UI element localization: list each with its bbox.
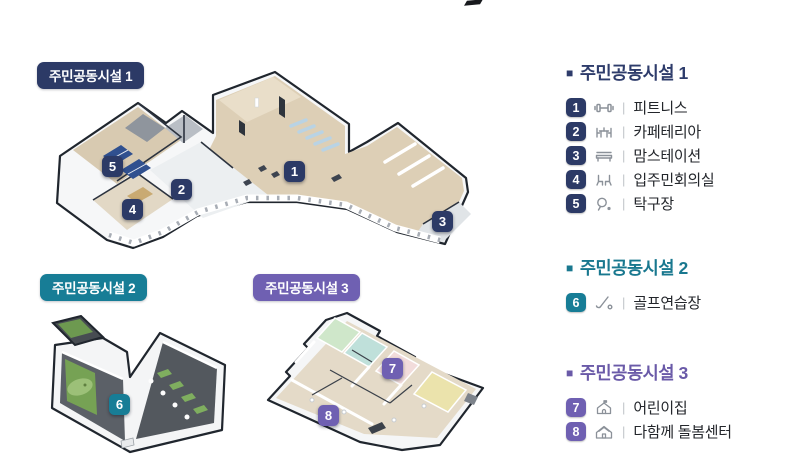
legend-item-mom-station: 3 | 맘스테이션: [566, 146, 798, 165]
golf-hole: [84, 384, 87, 387]
legend-title-text: 주민공동시설 1: [580, 62, 688, 84]
top-edge-fragment: [464, 0, 483, 6]
legend-item-meeting-room: 4 | 입주민회의실: [566, 170, 798, 189]
separator: |: [622, 400, 625, 415]
plan-label-2: 주민공동시설 2: [40, 274, 147, 301]
square-bullet-icon: ■: [566, 367, 573, 379]
daycare-building-icon: [594, 400, 614, 416]
legend-num-badge: 2: [566, 122, 586, 141]
dumbbell-icon: [594, 100, 614, 116]
meeting-chairs-icon: [594, 172, 614, 188]
legend-num-badge: 4: [566, 170, 586, 189]
legend-item-golf: 6 | 골프연습장: [566, 293, 798, 312]
legend-section-2: ■ 주민공동시설 2 6 | 골프연습장: [566, 257, 798, 312]
separator: |: [622, 100, 625, 115]
legend-item-label: 골프연습장: [633, 292, 701, 313]
legend-section-3: ■ 주민공동시설 3 7 | 어린이집 8 | 다함께 돌봄센터: [566, 362, 798, 441]
separator: |: [622, 196, 625, 211]
legend-title-1: ■ 주민공동시설 1: [566, 62, 798, 84]
legend-title-text: 주민공동시설 2: [580, 257, 688, 279]
legend-num-badge: 6: [566, 293, 586, 312]
map-marker-2: 2: [171, 179, 192, 200]
map-marker-1: 1: [284, 161, 305, 182]
legend-item-cafeteria: 2 | 카페테리아: [566, 122, 798, 141]
separator: |: [622, 124, 625, 139]
floorplan-2: [35, 315, 230, 463]
bench-icon: [594, 148, 614, 164]
legend-title-text: 주민공동시설 3: [580, 362, 688, 384]
plan-label-3: 주민공동시설 3: [253, 274, 360, 301]
map-marker-5: 5: [102, 156, 123, 177]
legend-item-label: 탁구장: [633, 193, 674, 214]
care-house-icon: [594, 424, 614, 440]
legend-num-badge: 1: [566, 98, 586, 117]
legend-item-daycare: 7 | 어린이집: [566, 398, 798, 417]
legend-item-fitness: 1 | 피트니스: [566, 98, 798, 117]
map-marker-7: 7: [382, 358, 403, 379]
legend-title-3: ■ 주민공동시설 3: [566, 362, 798, 384]
map-marker-3: 3: [432, 211, 453, 232]
legend-item-label: 입주민회의실: [633, 169, 714, 190]
legend-item-label: 다함께 돌봄센터: [633, 421, 731, 442]
golf-club-icon: [594, 295, 614, 311]
legend-item-care-center: 8 | 다함께 돌봄센터: [566, 422, 798, 441]
legend-item-label: 어린이집: [633, 397, 687, 418]
separator: |: [622, 295, 625, 310]
person-figure: [255, 98, 259, 107]
legend-section-1: ■ 주민공동시설 1 1 | 피트니스 2 | 카페테리아 3: [566, 62, 798, 213]
legend-item-label: 피트니스: [633, 97, 687, 118]
cafeteria-table-icon: [594, 124, 614, 140]
map-marker-8: 8: [318, 405, 339, 426]
legend-item-table-tennis: 5 | 탁구장: [566, 194, 798, 213]
separator: |: [622, 148, 625, 163]
legend-item-label: 맘스테이션: [633, 145, 701, 166]
legend-num-badge: 5: [566, 194, 586, 213]
map-marker-6: 6: [109, 394, 130, 415]
plan-label-1: 주민공동시설 1: [37, 62, 144, 89]
square-bullet-icon: ■: [566, 262, 573, 274]
legend-item-label: 카페테리아: [633, 121, 701, 142]
legend-num-badge: 8: [566, 422, 586, 441]
separator: |: [622, 424, 625, 439]
legend-num-badge: 3: [566, 146, 586, 165]
separator: |: [622, 172, 625, 187]
square-bullet-icon: ■: [566, 67, 573, 79]
legend-title-2: ■ 주민공동시설 2: [566, 257, 798, 279]
legend-num-badge: 7: [566, 398, 586, 417]
legend: ■ 주민공동시설 1 1 | 피트니스 2 | 카페테리아 3: [566, 62, 798, 441]
floorplan-3: [252, 300, 497, 462]
table-tennis-icon: [594, 196, 614, 212]
map-marker-4: 4: [122, 199, 143, 220]
